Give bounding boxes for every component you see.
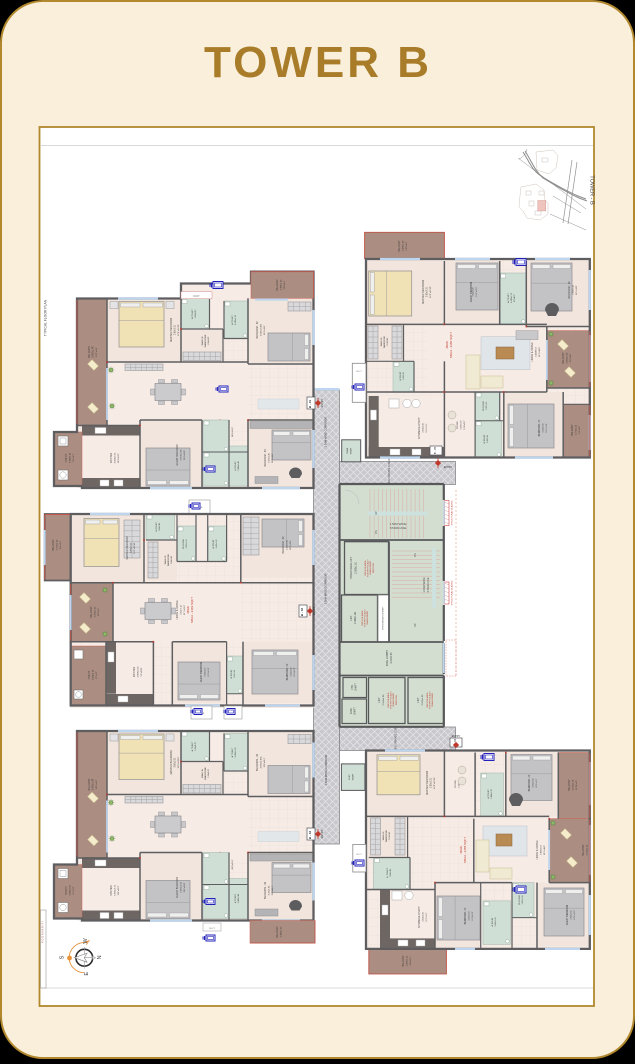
svg-text:A. TOILET: A. TOILET: [386, 867, 389, 877]
svg-text:BALCONY: BALCONY: [562, 352, 565, 364]
svg-text:3.890x2.45: 3.890x2.45: [567, 352, 569, 364]
svg-text:1.065x1.34: 1.065x1.34: [186, 540, 188, 549]
svg-text:STAIRCASE: STAIRCASE: [390, 526, 407, 530]
svg-text:2.480x1.40: 2.480x1.40: [495, 918, 497, 927]
svg-text:11'6"x10'0": 11'6"x10'0": [294, 667, 296, 677]
svg-text:3.60x3.04: 3.60x3.04: [571, 910, 573, 920]
svg-text:3.40x3.20: 3.40x3.20: [469, 911, 471, 921]
svg-text:11'6"x11'4": 11'6"x11'4": [264, 325, 266, 335]
svg-text:UP: UP: [413, 623, 417, 627]
svg-text:2.000x1.86: 2.000x1.86: [383, 694, 385, 706]
svg-text:1.480x1.45: 1.480x1.45: [281, 926, 283, 938]
svg-text:WARDROBE: WARDROBE: [167, 553, 170, 566]
svg-text:12'10"x4'9": 12'10"x4'9": [576, 780, 578, 791]
svg-text:12'0"x13'10": 12'0"x13'10": [178, 756, 180, 768]
svg-text:12'2"x13'10": 12'2"x13'10": [134, 542, 136, 554]
svg-text:12'9"x11'1": 12'9"x11'1": [536, 778, 538, 788]
svg-text:BALCONY: BALCONY: [571, 424, 574, 435]
svg-text:11'6"x11'4": 11'6"x11'4": [264, 757, 266, 767]
svg-text:3.60x3.04: 3.60x3.04: [533, 778, 535, 788]
svg-text:PU ROOM: PU ROOM: [483, 401, 485, 411]
svg-text:BEDROOM - 02: BEDROOM - 02: [282, 536, 285, 554]
svg-text:3.470x1.45: 3.470x1.45: [576, 424, 578, 435]
svg-text:18'0"x23'4": 18'0"x23'4": [232, 427, 234, 438]
svg-text:W: W: [83, 938, 89, 944]
svg-text:BEDROOM - 03: BEDROOM - 03: [264, 881, 267, 899]
svg-text:PERSONS: PERSONS: [373, 562, 375, 573]
svg-text:1.90x2.45: 1.90x2.45: [390, 869, 392, 877]
svg-text:CHALLENGED: CHALLENGED: [369, 560, 372, 575]
svg-text:3.50x3.04: 3.50x3.04: [291, 667, 293, 677]
svg-text:2.480x1.40: 2.480x1.40: [235, 314, 237, 325]
svg-text:10'6"x4'11": 10'6"x4'11": [464, 420, 466, 430]
svg-text:UP: UP: [374, 511, 378, 515]
svg-text:3.690x1.45: 3.690x1.45: [93, 346, 95, 358]
svg-text:3.910x1.45: 3.910x1.45: [573, 779, 575, 791]
svg-text:UTILITY: UTILITY: [66, 453, 68, 462]
svg-text:PRESSURIZATION SHAFT: PRESSURIZATION SHAFT: [382, 606, 385, 630]
svg-text:MASTER BEDROOM: MASTER BEDROOM: [426, 771, 429, 795]
svg-text:11'10"x10'0": 11'10"x10'0": [574, 909, 576, 920]
svg-text:3.60x3.04: 3.60x3.04: [473, 287, 475, 297]
svg-text:3.60x3.31: 3.60x3.31: [431, 777, 433, 788]
svg-text:12'0"x13'10": 12'0"x13'10": [434, 777, 436, 789]
svg-text:BALCONY: BALCONY: [402, 955, 405, 967]
svg-text:REFUGE AREA: REFUGE AREA: [364, 560, 367, 575]
svg-text:11'0"x11'4": 11'0"x11'4": [272, 453, 274, 463]
svg-text:1.50M WIDE: 1.50M WIDE: [422, 577, 426, 592]
svg-text:1.50M WIDE CORRIDOR: 1.50M WIDE CORRIDOR: [324, 755, 328, 786]
svg-text:3.470x1.45: 3.470x1.45: [587, 844, 589, 856]
svg-text:STRETCHER LIFT: STRETCHER LIFT: [349, 557, 353, 579]
svg-text:SHAFT: SHAFT: [355, 683, 358, 691]
svg-text:3.060x3.71: 3.060x3.71: [115, 884, 117, 896]
svg-text:LIFT: LIFT: [377, 697, 381, 703]
svg-text:DUCT: DUCT: [356, 371, 362, 373]
svg-text:MASTER BEDROOM: MASTER BEDROOM: [422, 280, 425, 304]
svg-text:OSMA: OSMA: [346, 447, 349, 454]
svg-text:BALCONY: BALCONY: [398, 240, 401, 252]
svg-text:3.550x3.04: 3.550x3.04: [181, 449, 183, 461]
svg-text:12'0"x13'10": 12'0"x13'10": [430, 286, 432, 298]
svg-text:A.TOILET: A.TOILET: [399, 371, 402, 381]
svg-text:BEDROOM - 03: BEDROOM - 03: [465, 907, 467, 924]
svg-text:CHALLENGED: CHALLENGED: [366, 610, 369, 625]
svg-text:11'4"x4'9": 11'4"x4'9": [579, 425, 581, 434]
svg-text:1.80x2.45: 1.80x2.45: [195, 309, 197, 319]
svg-text:A.TOILET: A.TOILET: [231, 747, 234, 757]
svg-text:A.TOILET: A.TOILET: [234, 893, 237, 903]
svg-text:MASTER BEDROOM: MASTER BEDROOM: [126, 537, 129, 560]
svg-text:LIVING & DINING: LIVING & DINING: [176, 600, 179, 619]
svg-text:8'0"x4'11": 8'0"x4'11": [514, 294, 516, 302]
svg-text:2.480x1.40: 2.480x1.40: [235, 747, 237, 758]
svg-text:1.480x1.45: 1.480x1.45: [407, 955, 409, 967]
svg-text:SHAFT: SHAFT: [350, 447, 353, 454]
svg-text:11'6"x11'1": 11'6"x11'1": [426, 912, 428, 922]
svg-text:KITCHEN: KITCHEN: [110, 885, 113, 896]
svg-text:PERSONS: PERSONS: [396, 694, 398, 705]
svg-text:3.50x3.30: 3.50x3.30: [423, 912, 425, 922]
svg-text:BEDROOM - 02: BEDROOM - 02: [256, 321, 259, 339]
svg-text:REFUGE AREA: REFUGE AREA: [426, 692, 429, 707]
svg-text:LIVING & DINING: LIVING & DINING: [536, 840, 539, 859]
svg-text:1.9062.45: 1.9062.45: [403, 372, 405, 380]
svg-text:3.30x3.45: 3.30x3.45: [543, 423, 545, 433]
svg-text:11'6"x12'2": 11'6"x12'2": [118, 453, 120, 463]
svg-text:REFUGE AREA: REFUGE AREA: [361, 610, 364, 625]
svg-text:SBUA - 2380 SQFT: SBUA - 2380 SQFT: [449, 332, 453, 358]
svg-text:BALCONY: BALCONY: [88, 346, 91, 358]
svg-text:3.50x3.30: 3.50x3.30: [423, 423, 425, 433]
svg-text:KITCHEN & UTILITY: KITCHEN & UTILITY: [419, 417, 421, 439]
svg-text:3.60x3.31: 3.60x3.31: [427, 286, 429, 297]
svg-text:3.30x3.45: 3.30x3.45: [269, 452, 271, 462]
svg-text:11'0"x11'4": 11'0"x11'4": [546, 423, 548, 433]
svg-text:3.550x3.04: 3.550x3.04: [181, 881, 183, 893]
svg-text:3.750x1.45: 3.750x1.45: [57, 539, 59, 551]
svg-text:2.500x1.61: 2.500x1.61: [355, 561, 358, 574]
svg-text:ENTRY: ENTRY: [320, 829, 324, 838]
svg-text:B - 01: B - 01: [308, 400, 312, 409]
svg-text:ENTRY: ENTRY: [320, 398, 324, 407]
svg-text:3.2061.50: 3.2061.50: [461, 420, 463, 430]
svg-text:WALK-IN: WALK-IN: [164, 555, 167, 564]
svg-text:BALCONY: BALCONY: [568, 779, 571, 791]
svg-text:FOR PHYSICALLY: FOR PHYSICALLY: [390, 691, 393, 709]
svg-text:REFUGE AREA: REFUGE AREA: [387, 692, 390, 707]
svg-text:MASTER BEDROOM: MASTER BEDROOM: [170, 318, 173, 342]
svg-text:3.60x3.31: 3.60x3.31: [175, 324, 177, 335]
svg-text:11'6"x10'6": 11'6"x10'6": [208, 667, 210, 677]
svg-text:3.690x1.45: 3.690x1.45: [93, 778, 95, 790]
svg-text:A.TOILET: A.TOILET: [231, 314, 234, 324]
svg-text:PU ROOM: PU ROOM: [183, 539, 185, 549]
svg-text:TOWER B: TOWER B: [204, 38, 432, 87]
svg-text:BALCONY: BALCONY: [582, 844, 585, 856]
svg-text:1.480x1.45: 1.480x1.45: [403, 240, 405, 252]
svg-text:2.480x1.50: 2.480x1.50: [491, 789, 493, 798]
svg-text:3.8902.44: 3.8902.44: [573, 284, 575, 295]
svg-text:WARDROBE: WARDROBE: [204, 767, 207, 780]
svg-text:2.480x1.40: 2.480x1.40: [238, 461, 240, 470]
svg-text:MASTER BEDROOM: MASTER BEDROOM: [170, 750, 173, 774]
svg-text:WARDROBE: WARDROBE: [204, 334, 207, 347]
svg-text:PU ROOM: PU ROOM: [519, 895, 521, 905]
svg-text:4'10"x4'9": 4'10"x4'9": [406, 241, 408, 250]
svg-text:BALCONY: BALCONY: [88, 778, 91, 790]
svg-text:LIVING & DINING: LIVING & DINING: [531, 342, 534, 361]
svg-text:11'6"x12'2": 11'6"x12'2": [118, 885, 120, 895]
svg-text:11'2"x10'6": 11'2"x10'6": [472, 911, 474, 921]
svg-text:2.480x1.50: 2.480x1.50: [511, 292, 513, 303]
svg-text:B - 05: B - 05: [433, 446, 437, 454]
svg-text:12'9"x8'0": 12'9"x8'0": [570, 353, 572, 362]
svg-text:BEDROOM - 02: BEDROOM - 02: [529, 774, 531, 791]
svg-text:2.4801.40: 2.4801.40: [487, 435, 489, 443]
svg-text:11'6"x11'1": 11'6"x11'1": [426, 423, 428, 433]
svg-text:DN: DN: [374, 530, 378, 534]
svg-text:2.860x3.20: 2.860x3.20: [138, 666, 140, 678]
svg-text:1.98x2.45: 1.98x2.45: [171, 556, 173, 564]
svg-text:12'0"x13'10": 12'0"x13'10": [178, 324, 180, 336]
svg-text:11'6"x3'3": 11'6"x3'3": [73, 453, 75, 462]
svg-text:BEDROOM - 02: BEDROOM - 02: [568, 281, 571, 299]
svg-text:FOR PHYSICALLY: FOR PHYSICALLY: [364, 609, 367, 627]
svg-text:A.TOILET: A.TOILET: [507, 292, 510, 302]
svg-text:12'0"x4'9": 12'0"x4'9": [96, 347, 98, 357]
svg-text:BEDROOM - 02: BEDROOM - 02: [287, 663, 289, 680]
svg-text:1.98x2.45: 1.98x2.45: [208, 768, 210, 778]
svg-text:FOR PHYSICALLY: FOR PHYSICALLY: [367, 559, 370, 577]
svg-text:3.50x3.19: 3.50x3.19: [205, 667, 207, 677]
svg-text:KITCHEN: KITCHEN: [133, 666, 136, 677]
svg-text:LIFT: LIFT: [349, 615, 353, 621]
svg-text:ELEC: ELEC: [349, 774, 351, 780]
svg-text:1.98x2.45: 1.98x2.45: [208, 336, 210, 346]
svg-text:TYPICAL FLOOR PLAN: TYPICAL FLOOR PLAN: [44, 299, 48, 336]
svg-text:A.TOILET: A.TOILET: [191, 741, 194, 751]
svg-text:2.1982.45: 2.1982.45: [387, 338, 389, 346]
svg-text:11'0"x11'4": 11'0"x11'4": [272, 885, 274, 895]
svg-text:11'6"x10'0": 11'6"x10'0": [184, 882, 186, 892]
svg-text:3.505x3.455: 3.505x3.455: [261, 756, 263, 769]
svg-text:3.880x1.00: 3.880x1.00: [70, 885, 72, 896]
svg-text:3.060x3.71: 3.060x3.71: [115, 452, 117, 464]
svg-text:LIFT: LIFT: [416, 697, 420, 703]
svg-text:A.TOILET: A.TOILET: [212, 539, 215, 549]
svg-text:CHALLENGED: CHALLENGED: [392, 692, 395, 707]
svg-text:ENTRY: ENTRY: [312, 606, 316, 615]
svg-text:12'9"x11'1": 12'9"x11'1": [576, 285, 578, 295]
svg-text:1.80x2.45: 1.80x2.45: [195, 741, 197, 751]
svg-text:A.TOILET: A.TOILET: [191, 308, 194, 318]
svg-text:KITCHEN & UTILITY: KITCHEN & UTILITY: [419, 906, 421, 928]
svg-text:A.TOILET: A.TOILET: [155, 522, 158, 532]
svg-text:KITCHEN: KITCHEN: [110, 452, 113, 463]
svg-text:FHC: FHC: [352, 684, 354, 689]
svg-text:1.0651.34: 1.0651.34: [486, 402, 488, 410]
svg-text:BALCONY: BALCONY: [276, 279, 279, 291]
svg-text:2.000x1.86: 2.000x1.86: [422, 694, 424, 706]
svg-text:3.8902.57: 3.8902.57: [541, 844, 543, 855]
svg-text:2.1902.45: 2.1902.45: [389, 832, 391, 840]
svg-text:WALK-IN: WALK-IN: [380, 337, 383, 346]
svg-text:2.860x1.00: 2.860x1.00: [93, 669, 95, 680]
svg-text:GUEST BEDROOM: GUEST BEDROOM: [201, 662, 203, 682]
svg-text:4'10"x4'9": 4'10"x4'9": [284, 280, 286, 289]
svg-text:2.30M WIDE CORRIDOR: 2.30M WIDE CORRIDOR: [324, 574, 328, 605]
svg-text:DUCT: DUCT: [209, 928, 216, 930]
svg-text:18'0"x23'4": 18'0"x23'4": [232, 859, 234, 870]
svg-text:1.480x1.45: 1.480x1.45: [281, 279, 283, 291]
svg-text:A.TOILET: A.TOILET: [491, 917, 494, 927]
svg-text:STRUCTURAL GLAZING: STRUCTURAL GLAZING: [451, 500, 454, 525]
svg-text:12'4"x4'9": 12'4"x4'9": [60, 540, 62, 549]
svg-text:3.880x3.31: 3.880x3.31: [131, 542, 133, 554]
svg-text:DUCT: DUCT: [193, 296, 200, 298]
svg-text:SHAFT: SHAFT: [352, 773, 355, 780]
svg-text:4'10"x4'9": 4'10"x4'9": [410, 956, 412, 965]
svg-text:1.90x1.40: 1.90x1.40: [234, 670, 236, 678]
svg-text:3.880x1.00: 3.880x1.00: [70, 452, 72, 463]
svg-text:A.TOILET: A.TOILET: [483, 434, 486, 444]
svg-text:12'9"x18'5": 12'9"x18'5": [539, 347, 541, 358]
svg-text:WALK-IN: WALK-IN: [382, 831, 385, 840]
svg-text:WALK-IN: WALK-IN: [201, 336, 204, 345]
svg-text:FAPA: FAPA: [350, 708, 353, 714]
svg-text:P O O R A K R I T I: P O O R A K R I T I: [40, 921, 44, 943]
svg-text:STAIRCASE: STAIRCASE: [426, 577, 430, 592]
svg-text:3.60x3.46: 3.60x3.46: [287, 539, 289, 549]
svg-text:STRUCTURAL GLAZING: STRUCTURAL GLAZING: [451, 580, 454, 605]
svg-text:2.480x1.40: 2.480x1.40: [216, 540, 218, 549]
svg-text:S: S: [60, 955, 66, 959]
svg-text:SBUA - 2385 SQFT: SBUA - 2385 SQFT: [463, 837, 467, 863]
svg-text:BEDROOM - 02: BEDROOM - 02: [256, 753, 259, 771]
svg-text:ENTRY: ENTRY: [444, 466, 453, 469]
svg-text:11'6"x3'3": 11'6"x3'3": [73, 886, 75, 895]
svg-text:WARDROBE: WARDROBE: [383, 335, 386, 348]
svg-text:B - 02: B - 02: [300, 608, 304, 617]
svg-text:A.TOILET: A.TOILET: [234, 461, 237, 471]
svg-text:12'0"x4'9": 12'0"x4'9": [98, 607, 100, 616]
svg-text:3.30x3.45: 3.30x3.45: [269, 885, 271, 895]
svg-text:3.690x1.45: 3.690x1.45: [95, 606, 97, 618]
svg-text:BALCONY: BALCONY: [90, 606, 93, 618]
svg-text:A.TOILET: A.TOILET: [487, 789, 490, 799]
svg-text:3.60x3.31: 3.60x3.31: [175, 757, 177, 768]
svg-text:FOR PHYSICALLY: FOR PHYSICALLY: [429, 691, 432, 709]
svg-text:11'6"x10'0": 11'6"x10'0": [184, 450, 186, 460]
svg-text:9'5"x3'3": 9'5"x3'3": [96, 671, 98, 679]
svg-text:12'0"x11'4": 12'0"x11'4": [290, 540, 292, 550]
svg-text:FIRE LOBBY: FIRE LOBBY: [385, 650, 389, 667]
svg-text:BALCONY: BALCONY: [52, 539, 55, 551]
svg-text:3.50x7.11: 3.50x7.11: [181, 604, 183, 614]
svg-text:FOYER: FOYER: [457, 421, 459, 429]
svg-text:BEDROOM - 03: BEDROOM - 03: [539, 419, 541, 436]
svg-text:B - 03: B - 03: [308, 831, 312, 840]
svg-text:2.000x1.86: 2.000x1.86: [354, 611, 357, 624]
svg-text:N: N: [97, 955, 103, 959]
svg-text:CHALLENGED: CHALLENGED: [431, 692, 434, 707]
svg-text:BALCONY: BALCONY: [276, 926, 279, 938]
svg-text:A.TOILET: A.TOILET: [230, 669, 233, 679]
svg-text:UTILITY: UTILITY: [89, 670, 91, 679]
svg-text:GUEST BEDROOM: GUEST BEDROOM: [567, 905, 569, 925]
svg-text:12'9"x18'5": 12'9"x18'5": [544, 845, 546, 856]
svg-text:WARDROBE: WARDROBE: [385, 829, 388, 842]
svg-text:2.480x1.40: 2.480x1.40: [238, 894, 240, 903]
svg-text:SBUA - 2403 SQFT: SBUA - 2403 SQFT: [190, 597, 194, 623]
svg-text:DUCT: DUCT: [356, 854, 362, 856]
svg-text:SHAFT: SHAFT: [354, 707, 357, 715]
svg-text:BEDROOM - 03: BEDROOM - 03: [264, 449, 267, 467]
svg-text:WALK-IN: WALK-IN: [201, 769, 204, 778]
svg-text:GUEST BEDROOM: GUEST BEDROOM: [176, 444, 179, 465]
svg-text:1.065x1.34: 1.065x1.34: [522, 896, 524, 905]
svg-text:11'10"x10'0": 11'10"x10'0": [476, 286, 478, 297]
svg-text:ENTRY: ENTRY: [452, 735, 461, 738]
svg-text:12'0"x4'9": 12'0"x4'9": [96, 780, 98, 790]
svg-text:3.505x3.455: 3.505x3.455: [261, 323, 263, 336]
svg-text:9'5"x10'6": 9'5"x10'6": [141, 667, 143, 676]
svg-text:3.4698.57: 3.4698.57: [536, 346, 538, 357]
svg-text:UTILITY: UTILITY: [66, 886, 68, 895]
svg-text:GUEST BEDROOM: GUEST BEDROOM: [176, 877, 179, 898]
svg-text:E: E: [84, 972, 90, 976]
svg-text:2.00x5.95: 2.00x5.95: [390, 652, 393, 664]
svg-text:DN: DN: [413, 553, 417, 557]
svg-text:1.50M WIDE CORRIDOR: 1.50M WIDE CORRIDOR: [324, 417, 328, 448]
svg-text:1.80x2.45: 1.80x2.45: [159, 523, 161, 531]
svg-text:TOWER - B: TOWER - B: [588, 175, 594, 205]
svg-text:FOYER: FOYER: [455, 780, 457, 788]
